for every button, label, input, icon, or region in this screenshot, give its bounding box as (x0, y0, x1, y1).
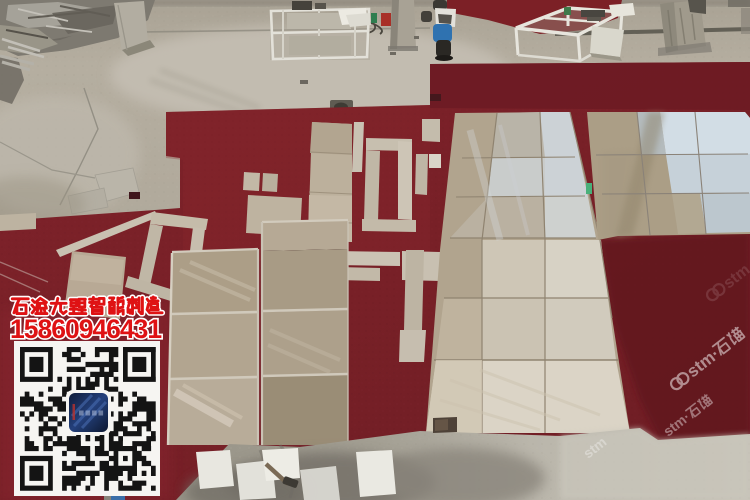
svg-text:15860946431: 15860946431 (10, 314, 161, 344)
